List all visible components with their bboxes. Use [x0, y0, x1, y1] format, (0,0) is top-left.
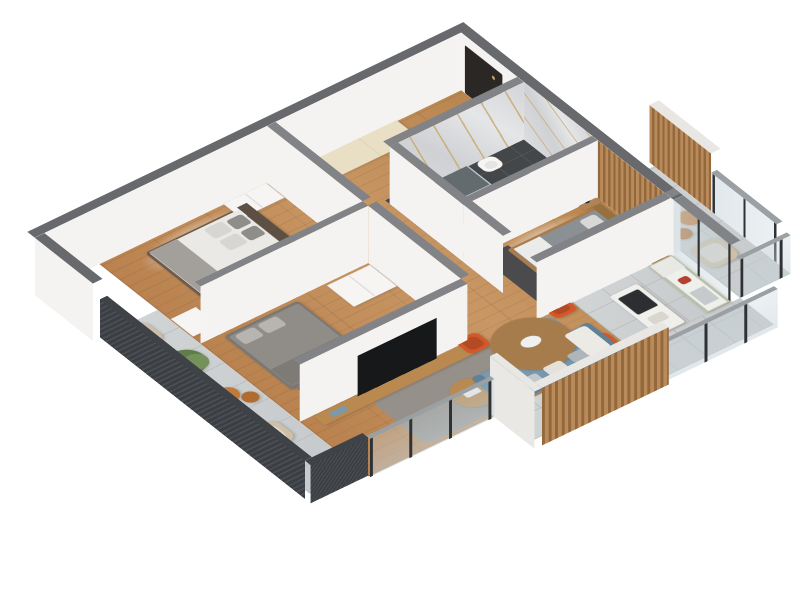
- apartment-3d-floorplan-render: [0, 0, 800, 600]
- wardrobe-divider: [349, 276, 375, 296]
- table-decor: [517, 333, 545, 350]
- toilet-seat: [482, 159, 500, 170]
